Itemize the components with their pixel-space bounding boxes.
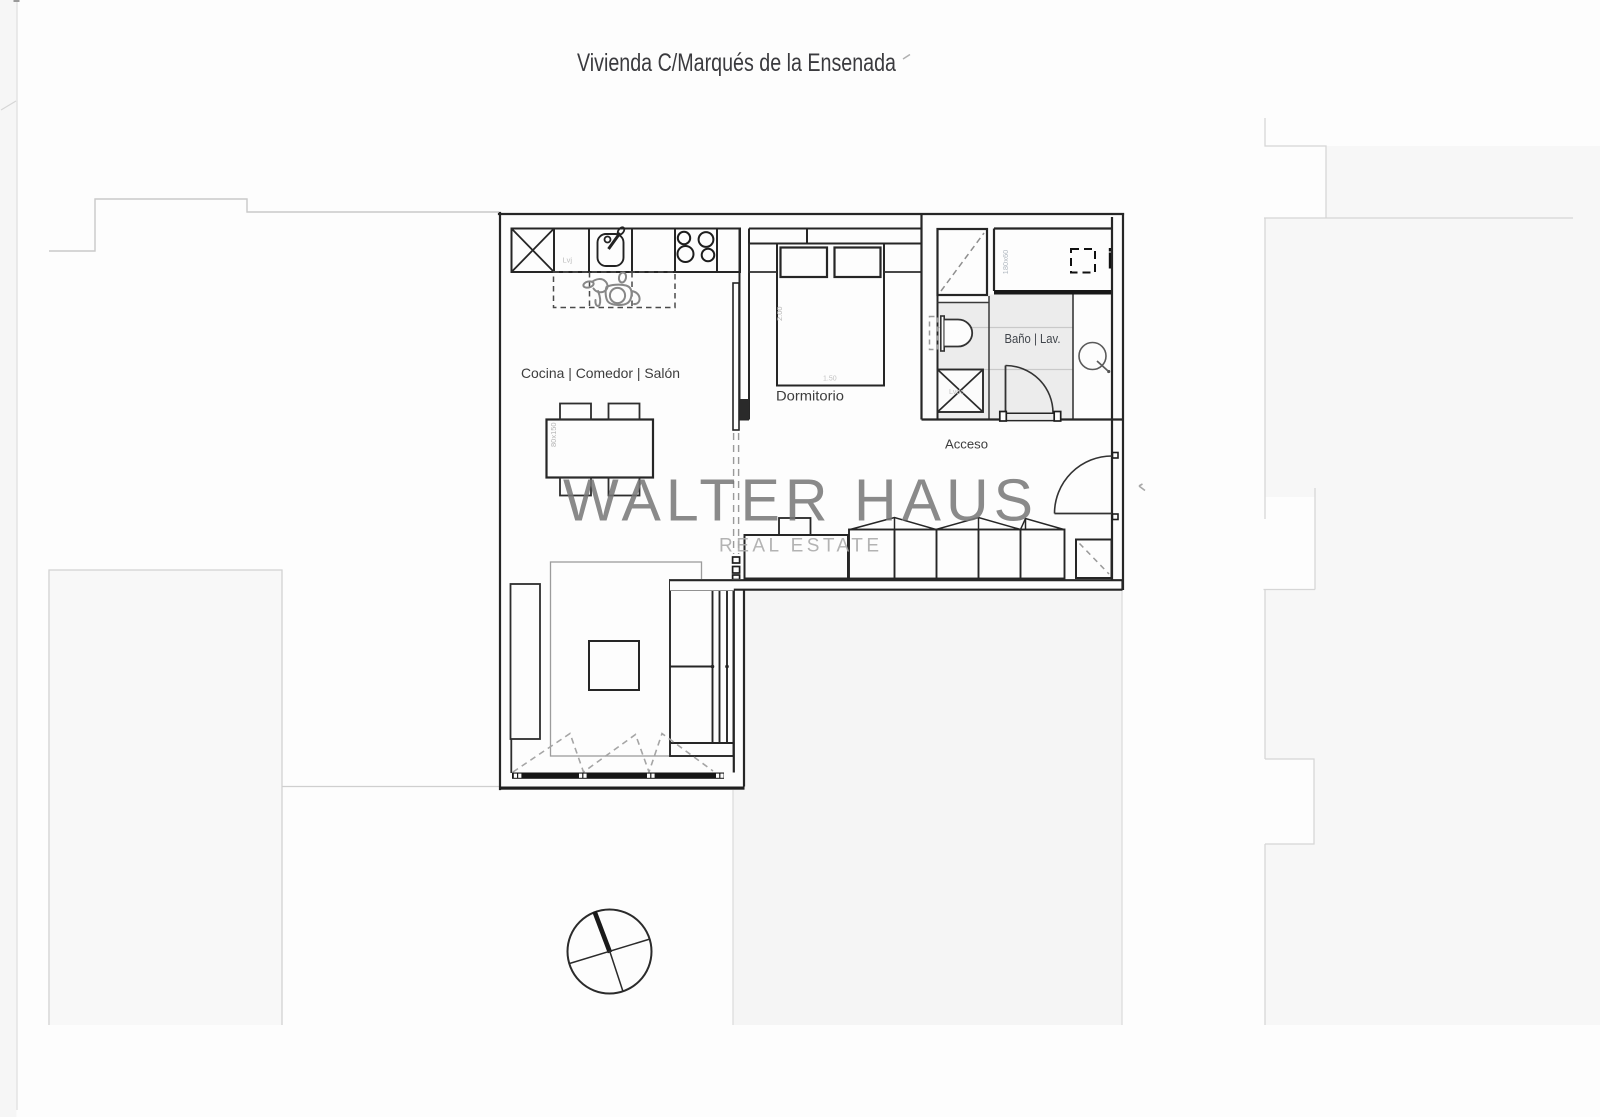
svg-text:Lvj: Lvj	[563, 256, 573, 265]
svg-text:WALTER HAUS: WALTER HAUS	[563, 468, 1033, 534]
svg-text:Lvdc: Lvdc	[949, 389, 964, 396]
svg-text:Baño | Lav.: Baño | Lav.	[1005, 332, 1061, 346]
svg-text:REAL ESTATE: REAL ESTATE	[719, 536, 879, 557]
svg-text:180x60: 180x60	[1001, 250, 1010, 275]
svg-text:Vivienda C/Marqués de la Ensen: Vivienda C/Marqués de la Ensenada	[577, 49, 896, 77]
svg-text:Dormitorio: Dormitorio	[776, 388, 844, 404]
svg-text:Cocina | Comedor | Salón: Cocina | Comedor | Salón	[521, 365, 680, 381]
svg-text:80x150: 80x150	[549, 422, 558, 447]
svg-text:1.50: 1.50	[823, 376, 837, 383]
svg-text:2.00: 2.00	[775, 306, 784, 321]
svg-text:Acceso: Acceso	[945, 437, 988, 452]
